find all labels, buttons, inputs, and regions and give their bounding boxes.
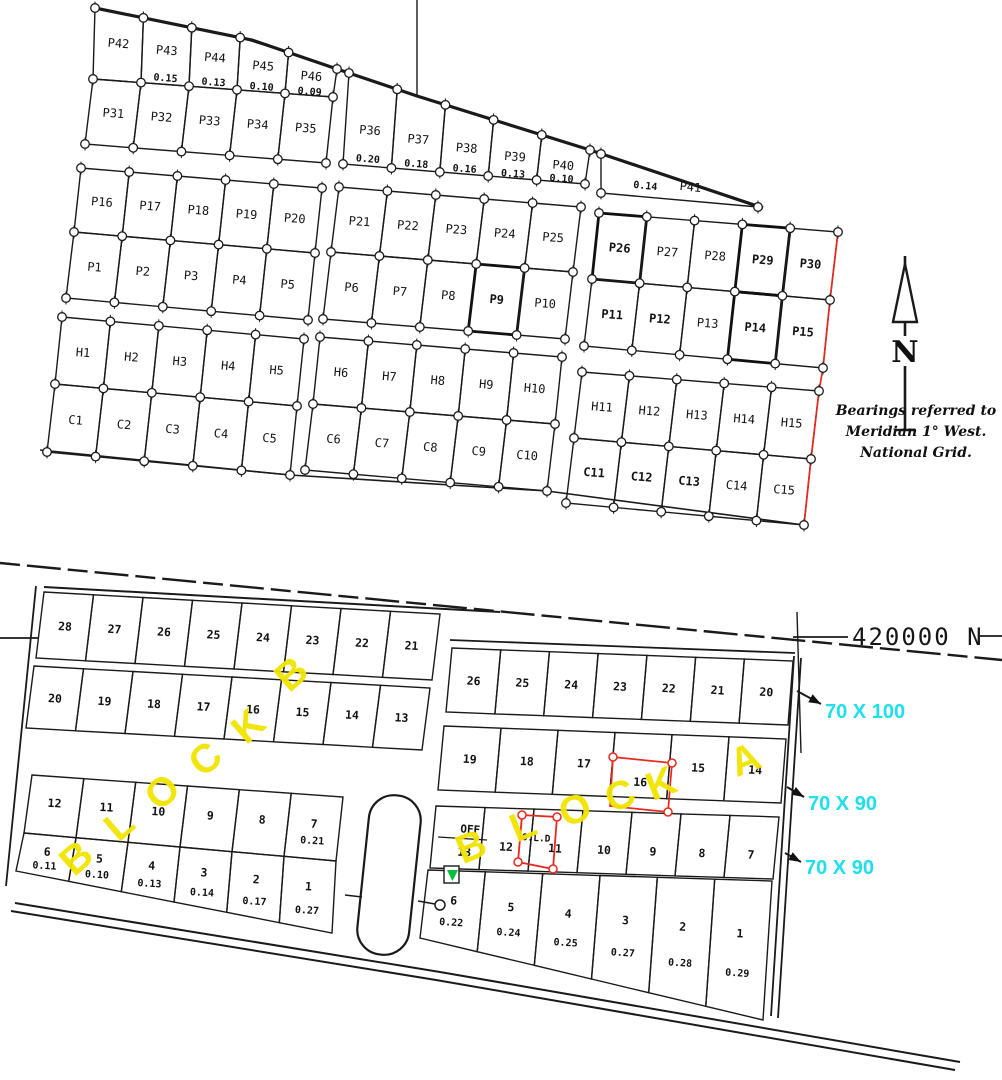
label: P3 (183, 268, 199, 283)
label: 0.25 (553, 937, 578, 949)
survey-marker-icon (690, 216, 699, 225)
survey-marker-icon (137, 78, 146, 87)
label: 23 (305, 633, 320, 648)
label: C15 (773, 482, 796, 498)
survey-marker-icon (586, 146, 595, 155)
plot-cell (592, 876, 658, 993)
survey-marker-icon (43, 448, 52, 457)
label: P37 (407, 132, 430, 148)
label: P4 (232, 273, 248, 288)
label: 0.13 (501, 168, 526, 181)
survey-marker-icon (349, 470, 358, 479)
survey-marker-icon (424, 256, 433, 265)
label: 0.27 (295, 905, 320, 917)
label: 18 (147, 696, 162, 711)
label: O (552, 784, 597, 836)
survey-marker-icon (609, 503, 618, 512)
label: P35 (294, 120, 317, 136)
label: P45 (252, 58, 275, 74)
label: H13 (685, 407, 708, 423)
survey-marker-icon (225, 151, 234, 160)
label: P22 (397, 218, 420, 234)
survey-marker-icon (318, 184, 327, 193)
label: P24 (493, 226, 516, 242)
label: P44 (204, 50, 227, 66)
label: 28 (58, 619, 73, 634)
label: P10 (534, 296, 557, 312)
survey-marker-icon (139, 14, 148, 23)
label: P9 (489, 292, 505, 307)
survey-marker-icon (393, 85, 402, 94)
survey-marker-icon (286, 471, 295, 480)
survey-marker-icon (558, 353, 567, 362)
survey-marker-icon (435, 900, 445, 910)
survey-marker-icon (89, 75, 98, 84)
label: 23 (613, 679, 628, 694)
label: 17 (577, 756, 592, 771)
survey-marker-icon (293, 402, 302, 411)
label: H11 (591, 399, 614, 415)
survey-marker-icon (480, 195, 489, 204)
survey-marker-icon (502, 416, 511, 425)
block-a-road-edge (450, 640, 795, 653)
red-boundary-line (804, 232, 838, 525)
label: 70 X 90 (808, 793, 877, 815)
label: P43 (155, 43, 178, 59)
label: P33 (198, 113, 221, 129)
survey-marker-icon (441, 101, 450, 110)
survey-marker-icon (628, 346, 637, 355)
survey-marker-icon (815, 387, 824, 396)
label: C8 (423, 440, 439, 455)
label: 24 (256, 630, 271, 645)
survey-marker-icon (436, 168, 445, 177)
label: P7 (392, 284, 408, 299)
survey-marker-icon (367, 319, 376, 328)
label: P28 (704, 248, 727, 264)
survey-marker-icon (301, 466, 310, 475)
survey-marker-icon (509, 349, 518, 358)
label: H12 (638, 403, 661, 419)
label: 15 (295, 705, 310, 720)
survey-marker-icon (270, 180, 279, 189)
label: P29 (751, 252, 774, 268)
label: P46 (300, 68, 323, 84)
label: 0.24 (496, 927, 521, 939)
survey-marker-icon (625, 372, 634, 381)
survey-marker-icon (416, 323, 425, 332)
block-b-road-edge (44, 587, 500, 612)
red-survey-marker-icon (549, 865, 557, 873)
survey-marker-icon (335, 183, 344, 192)
survey-marker-icon (826, 296, 835, 305)
plot-cell (227, 852, 284, 923)
survey-marker-icon (155, 322, 164, 331)
survey-marker-icon (538, 131, 547, 140)
label: 8 (698, 846, 706, 860)
survey-marker-icon (316, 333, 325, 342)
label: 8 (258, 812, 266, 826)
label: 21 (710, 683, 725, 698)
label: H5 (269, 363, 285, 378)
survey-marker-icon (214, 240, 223, 249)
label: P32 (150, 109, 173, 125)
survey-marker-icon (595, 209, 604, 218)
label: C (180, 733, 231, 785)
survey-marker-icon (759, 451, 768, 460)
survey-marker-icon (196, 393, 205, 402)
label: 3 (622, 913, 630, 927)
label: 9 (206, 808, 214, 822)
label: P13 (696, 315, 719, 331)
label: P19 (235, 207, 258, 223)
survey-marker-icon (754, 203, 763, 212)
label: 0.14 (633, 180, 658, 193)
survey-marker-icon (489, 116, 498, 125)
label: 22 (355, 635, 370, 650)
survey-marker-icon (520, 264, 529, 273)
survey-marker-icon (767, 383, 776, 392)
label: 3 (200, 865, 208, 879)
label: P39 (504, 149, 527, 165)
survey-marker-icon (62, 294, 71, 303)
survey-marker-icon (185, 82, 194, 91)
survey-marker-icon (819, 364, 828, 373)
plot-cell (174, 847, 232, 912)
label: P30 (799, 256, 822, 272)
survey-marker-icon (159, 303, 168, 312)
label: P40 (552, 158, 575, 174)
block-b-title: BLOCKB (51, 648, 317, 884)
label: H10 (523, 381, 546, 397)
survey-marker-icon (58, 313, 67, 322)
label: 24 (564, 677, 579, 692)
label: C3 (165, 422, 181, 437)
label: 0.20 (355, 153, 380, 166)
label: P21 (348, 214, 371, 230)
survey-marker-icon (345, 69, 354, 78)
label: 0.27 (610, 947, 635, 959)
survey-marker-icon (99, 384, 108, 393)
survey-marker-icon (364, 337, 373, 346)
survey-marker-icon (166, 236, 175, 245)
survey-marker-icon (454, 412, 463, 421)
label: 27 (107, 622, 122, 637)
survey-marker-icon (383, 187, 392, 196)
label: H15 (780, 415, 803, 431)
survey-marker-icon (712, 446, 721, 455)
plot-cell (279, 856, 336, 933)
survey-marker-icon (118, 232, 127, 241)
survey-marker-icon (532, 176, 541, 185)
leader-arrow-icon (808, 694, 821, 704)
label: 9 (649, 844, 657, 858)
survey-marker-icon (705, 512, 714, 521)
survey-marker-icon (807, 455, 816, 464)
label: H6 (333, 365, 349, 380)
label: H2 (124, 350, 140, 365)
survey-marker-icon (237, 466, 246, 475)
leader-arrow-icon (788, 852, 801, 862)
survey-marker-icon (834, 228, 843, 237)
label: 22 (661, 681, 676, 696)
label: 0.29 (725, 968, 750, 980)
survey-marker-icon (617, 438, 626, 447)
survey-marker-icon (203, 326, 212, 335)
label: 0.09 (297, 86, 322, 99)
survey-marker-icon (129, 144, 138, 153)
survey-marker-icon (562, 499, 571, 508)
survey-marker-icon (786, 224, 795, 233)
label: P25 (542, 230, 565, 246)
label: 26 (157, 624, 172, 639)
label: 0.10 (549, 173, 574, 186)
label: 7 (747, 847, 755, 861)
survey-marker-icon (720, 379, 729, 388)
survey-marker-icon (70, 228, 79, 237)
red-survey-marker-icon (664, 808, 672, 816)
survey-marker-icon (81, 140, 90, 149)
road-island (355, 793, 423, 958)
survey-marker-icon (580, 342, 589, 351)
label: C4 (213, 426, 229, 441)
label: 12 (47, 796, 62, 811)
label: A (723, 734, 766, 786)
label: 0.21 (300, 835, 325, 847)
cadastral-survey-plan: P42P430.15P440.13P450.10P460.09P31P32P33… (0, 0, 1002, 1080)
survey-marker-icon (319, 315, 328, 324)
label: 6 (43, 844, 51, 858)
survey-marker-icon (665, 442, 674, 451)
label: 4 (148, 858, 156, 872)
survey-marker-icon (255, 311, 264, 320)
label: K (223, 700, 274, 752)
survey-marker-icon (683, 283, 692, 292)
label: C13 (678, 473, 701, 489)
label: P8 (441, 288, 457, 303)
label: 1 (305, 879, 313, 893)
survey-marker-icon (309, 400, 318, 409)
survey-marker-icon (512, 331, 521, 340)
label: P11 (601, 307, 624, 323)
label: K (639, 758, 682, 810)
plot-cell (534, 874, 600, 979)
survey-marker-icon (110, 298, 119, 307)
survey-marker-icon (91, 452, 100, 461)
label: 25 (515, 675, 530, 690)
label: H4 (220, 358, 236, 373)
survey-marker-icon (472, 260, 481, 269)
survey-marker-icon (398, 474, 407, 483)
label: P5 (280, 277, 296, 292)
survey-marker-icon (233, 86, 242, 95)
survey-marker-icon (738, 220, 747, 229)
survey-marker-icon (125, 168, 134, 177)
label: 15 (691, 760, 706, 775)
survey-marker-icon (329, 93, 338, 102)
label: 12 (499, 839, 514, 854)
label: National Grid. (859, 445, 972, 461)
survey-marker-icon (800, 521, 809, 530)
survey-marker-icon (673, 375, 682, 384)
label: Meridian 1° West. (845, 424, 987, 440)
survey-marker-icon (569, 268, 578, 277)
survey-marker-icon (140, 457, 149, 466)
label: 7 (310, 817, 318, 831)
survey-marker-icon (106, 317, 115, 326)
red-survey-marker-icon (514, 858, 522, 866)
label: P26 (608, 240, 631, 256)
survey-marker-icon (597, 150, 606, 159)
label: P17 (139, 198, 162, 214)
label: 0.17 (242, 896, 267, 908)
survey-marker-icon (577, 203, 586, 212)
label: 420000 N (852, 623, 984, 651)
survey-marker-icon (581, 180, 590, 189)
label: 2 (679, 920, 687, 934)
label: P12 (649, 311, 672, 327)
survey-marker-icon (375, 252, 384, 261)
plot-cell (706, 879, 772, 1020)
survey-marker-icon (322, 159, 331, 168)
label: C10 (516, 448, 539, 464)
label: C9 (471, 444, 487, 459)
survey-marker-icon (311, 249, 320, 258)
label: 20 (759, 685, 774, 700)
survey-marker-icon (406, 408, 415, 417)
survey-marker-icon (494, 483, 503, 492)
label: 1 (736, 926, 744, 940)
survey-marker-icon (643, 213, 652, 222)
label: 0.13 (137, 878, 162, 890)
survey-marker-icon (657, 508, 666, 517)
survey-marker-icon (635, 279, 644, 288)
label: H8 (430, 373, 446, 388)
survey-marker-icon (300, 335, 309, 344)
survey-marker-icon (263, 245, 272, 254)
label: 6 (450, 893, 458, 907)
label: C2 (116, 417, 132, 432)
block-b-west-boundary (6, 586, 36, 886)
label: B (266, 648, 317, 700)
survey-marker-icon (339, 160, 348, 169)
plot-cell (477, 872, 543, 966)
label: O (136, 765, 188, 819)
label: N (891, 335, 918, 370)
label: C14 (725, 478, 748, 494)
label: Bearings referred to (835, 403, 997, 419)
label: P16 (91, 194, 114, 210)
label: P14 (744, 320, 767, 336)
survey-marker-icon (778, 292, 787, 301)
plot-cell (649, 877, 715, 1006)
label: 20 (48, 691, 63, 706)
label: 21 (404, 638, 419, 653)
survey-marker-icon (484, 172, 493, 181)
survey-marker-icon (461, 345, 470, 354)
label: 0.28 (668, 957, 693, 969)
label: 5 (507, 900, 515, 914)
label: P36 (359, 123, 382, 139)
label: P15 (792, 324, 815, 340)
survey-marker-icon (771, 359, 780, 368)
label: H1 (75, 345, 91, 360)
survey-marker-icon (148, 389, 157, 398)
label: 10 (597, 843, 612, 858)
label: 0.22 (439, 917, 464, 929)
label: 0.14 (190, 887, 215, 899)
label: P23 (445, 222, 468, 238)
survey-marker-icon (432, 191, 441, 200)
label: C12 (630, 469, 653, 485)
label: H9 (478, 377, 494, 392)
label: C1 (68, 413, 84, 428)
survey-marker-icon (551, 420, 560, 429)
survey-marker-icon (731, 287, 740, 296)
survey-marker-icon (723, 355, 732, 364)
survey-marker-icon (597, 189, 606, 198)
label: 18 (520, 754, 535, 769)
survey-marker-icon (578, 368, 587, 377)
survey-marker-icon (413, 341, 422, 350)
label: H14 (733, 411, 756, 427)
label: H7 (382, 369, 398, 384)
survey-marker-icon (189, 462, 198, 471)
survey-marker-icon (304, 316, 313, 325)
survey-marker-icon (281, 89, 290, 98)
label: C11 (583, 465, 606, 481)
label: C6 (326, 432, 342, 447)
label: P6 (344, 280, 360, 295)
label: P42 (107, 36, 130, 52)
survey-marker-icon (284, 48, 293, 57)
label: H3 (172, 354, 188, 369)
survey-marker-icon (333, 65, 342, 74)
label: P41 (679, 179, 702, 195)
label: 19 (97, 694, 112, 709)
survey-marker-icon (51, 380, 60, 389)
label: 70 X 100 (825, 701, 905, 723)
survey-marker-icon (188, 23, 197, 32)
label: C7 (374, 436, 390, 451)
survey-marker-icon (251, 330, 260, 339)
label: B (449, 821, 492, 873)
bottom-road-line (15, 903, 960, 1062)
label: 26 (466, 674, 481, 689)
survey-marker-icon (357, 404, 366, 413)
label: 14 (345, 707, 360, 722)
label: 0.11 (32, 860, 57, 872)
label: 13 (394, 710, 409, 725)
survey-marker-icon (752, 516, 761, 525)
label: 25 (206, 627, 221, 642)
label: P20 (283, 211, 306, 227)
label: P34 (246, 117, 269, 133)
survey-marker-icon (244, 397, 253, 406)
red-survey-marker-icon (609, 753, 617, 761)
survey-marker-icon (207, 307, 216, 316)
survey-marker-icon (675, 351, 684, 360)
survey-marker-icon (528, 199, 537, 208)
bottom-road-line (11, 911, 955, 1070)
survey-marker-icon (570, 434, 579, 443)
label: 0.18 (404, 158, 429, 171)
label: P2 (135, 264, 151, 279)
survey-marker-icon (77, 164, 86, 173)
label: C5 (262, 431, 278, 446)
survey-marker-icon (543, 487, 552, 496)
plan-canvas: P42P430.15P440.13P450.10P460.09P31P32P33… (0, 0, 1002, 1080)
